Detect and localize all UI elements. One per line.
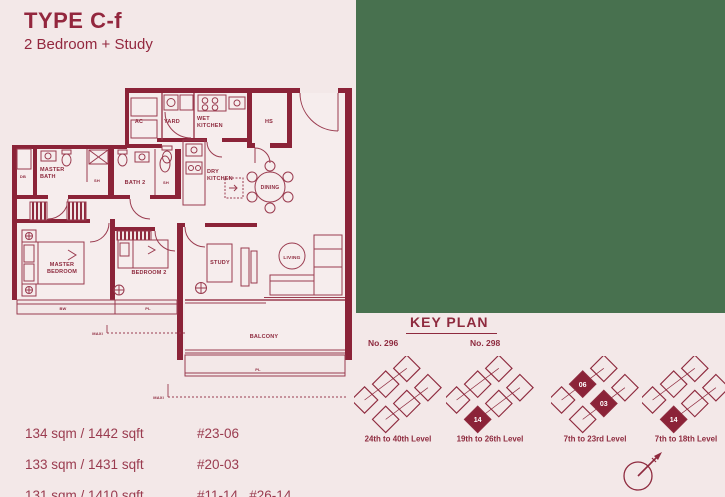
unit-number: 14 bbox=[474, 417, 482, 424]
floor-plan: ACYARDWETKITCHENHSDRYKITCHENDININGMASTER… bbox=[8, 82, 356, 419]
area-size: 131 sqm / 1410 sqft bbox=[25, 488, 175, 497]
room-label: BW bbox=[59, 306, 66, 311]
cluster-connector bbox=[653, 368, 695, 400]
floor-plan-svg: ACYARDWETKITCHENHSDRYKITCHENDININGMASTER… bbox=[8, 82, 356, 414]
cluster-level-label: 19th to 26th Level bbox=[457, 434, 524, 443]
room-label: WET bbox=[197, 116, 210, 122]
room-label: STUDY bbox=[210, 260, 230, 266]
unit-numbers: #23-06 bbox=[197, 426, 239, 441]
area-row: 133 sqm / 1431 sqft #20-03 bbox=[25, 449, 291, 480]
building-unit bbox=[642, 387, 666, 413]
wardrobe bbox=[117, 231, 151, 240]
cluster-level-label: 7th to 18th Level bbox=[655, 434, 717, 443]
room-label: BEDROOM bbox=[47, 269, 77, 275]
room-label: MASTER bbox=[50, 262, 74, 268]
key-plan-title: KEY PLAN bbox=[406, 314, 497, 334]
wardrobe bbox=[30, 202, 47, 220]
room-label: KITCHEN bbox=[207, 176, 233, 182]
unit-number: 06 bbox=[579, 382, 587, 389]
room-label: DINING bbox=[261, 185, 280, 191]
room-label: KITCHEN bbox=[197, 123, 223, 129]
room-label: MAXI bbox=[153, 395, 164, 400]
unit-number: 14 bbox=[670, 417, 678, 424]
area-listings: 134 sqm / 1442 sqft #23-06 133 sqm / 143… bbox=[25, 418, 291, 497]
area-row: 134 sqm / 1442 sqft #23-06 bbox=[25, 418, 291, 449]
cluster-connector bbox=[457, 368, 499, 400]
building-unit bbox=[446, 387, 470, 413]
unit-numbers: #11-14 , #26-14 bbox=[197, 488, 291, 497]
page-header: TYPE C-f 2 Bedroom + Study bbox=[24, 8, 153, 53]
room-label: LIVING bbox=[283, 255, 300, 261]
key-plan-cluster-4: 147th to 18th Level bbox=[642, 356, 725, 444]
room-label: DRY bbox=[207, 169, 219, 175]
building-unit bbox=[354, 387, 378, 413]
building-unit bbox=[551, 387, 575, 413]
key-plan-cluster-2: 1419th to 26th Level bbox=[446, 356, 534, 444]
area-size: 134 sqm / 1442 sqft bbox=[25, 426, 175, 441]
cluster-level-label: 7th to 23rd Level bbox=[564, 434, 627, 443]
unit-numbers: #20-03 bbox=[197, 457, 239, 472]
cluster-connector bbox=[386, 388, 428, 420]
room-label: BEDROOM 2 bbox=[131, 270, 166, 276]
unit-number: 03 bbox=[600, 401, 608, 408]
room-label: SH bbox=[163, 180, 169, 185]
room-label: MASTER bbox=[40, 167, 64, 173]
key-plan-cluster-1: 24th to 40th Level bbox=[354, 356, 442, 444]
hero-image-panel bbox=[356, 0, 725, 313]
room-label: HS bbox=[265, 119, 273, 125]
wardrobe bbox=[67, 202, 86, 220]
block-number-296: No. 296 bbox=[368, 338, 398, 348]
room-label: MAXI bbox=[92, 331, 103, 336]
room-label: PL bbox=[255, 367, 261, 372]
unit-type-subtitle: 2 Bedroom + Study bbox=[24, 36, 153, 53]
room-label: SH bbox=[94, 178, 100, 183]
floorplan-page: TYPE C-f 2 Bedroom + Study bbox=[0, 0, 725, 497]
cluster-level-label: 24th to 40th Level bbox=[365, 434, 432, 443]
room-label: BATH 2 bbox=[125, 180, 146, 186]
room-label: BALCONY bbox=[250, 334, 279, 340]
building-unit bbox=[703, 374, 725, 400]
room-label: DB bbox=[20, 174, 26, 179]
cluster-connector bbox=[365, 368, 407, 400]
area-row: 131 sqm / 1410 sqft #11-14 , #26-14 bbox=[25, 480, 291, 497]
room-label: PL bbox=[145, 306, 151, 311]
block-number-298: No. 298 bbox=[470, 338, 500, 348]
room-label: YARD bbox=[164, 119, 180, 125]
north-compass-icon bbox=[616, 448, 672, 496]
area-size: 133 sqm / 1431 sqft bbox=[25, 457, 175, 472]
room-label: BATH bbox=[40, 174, 56, 180]
unit-type-title: TYPE C-f bbox=[24, 8, 153, 34]
key-plan-cluster-3: 06037th to 23rd Level bbox=[551, 356, 639, 444]
room-label: AC bbox=[135, 119, 143, 125]
